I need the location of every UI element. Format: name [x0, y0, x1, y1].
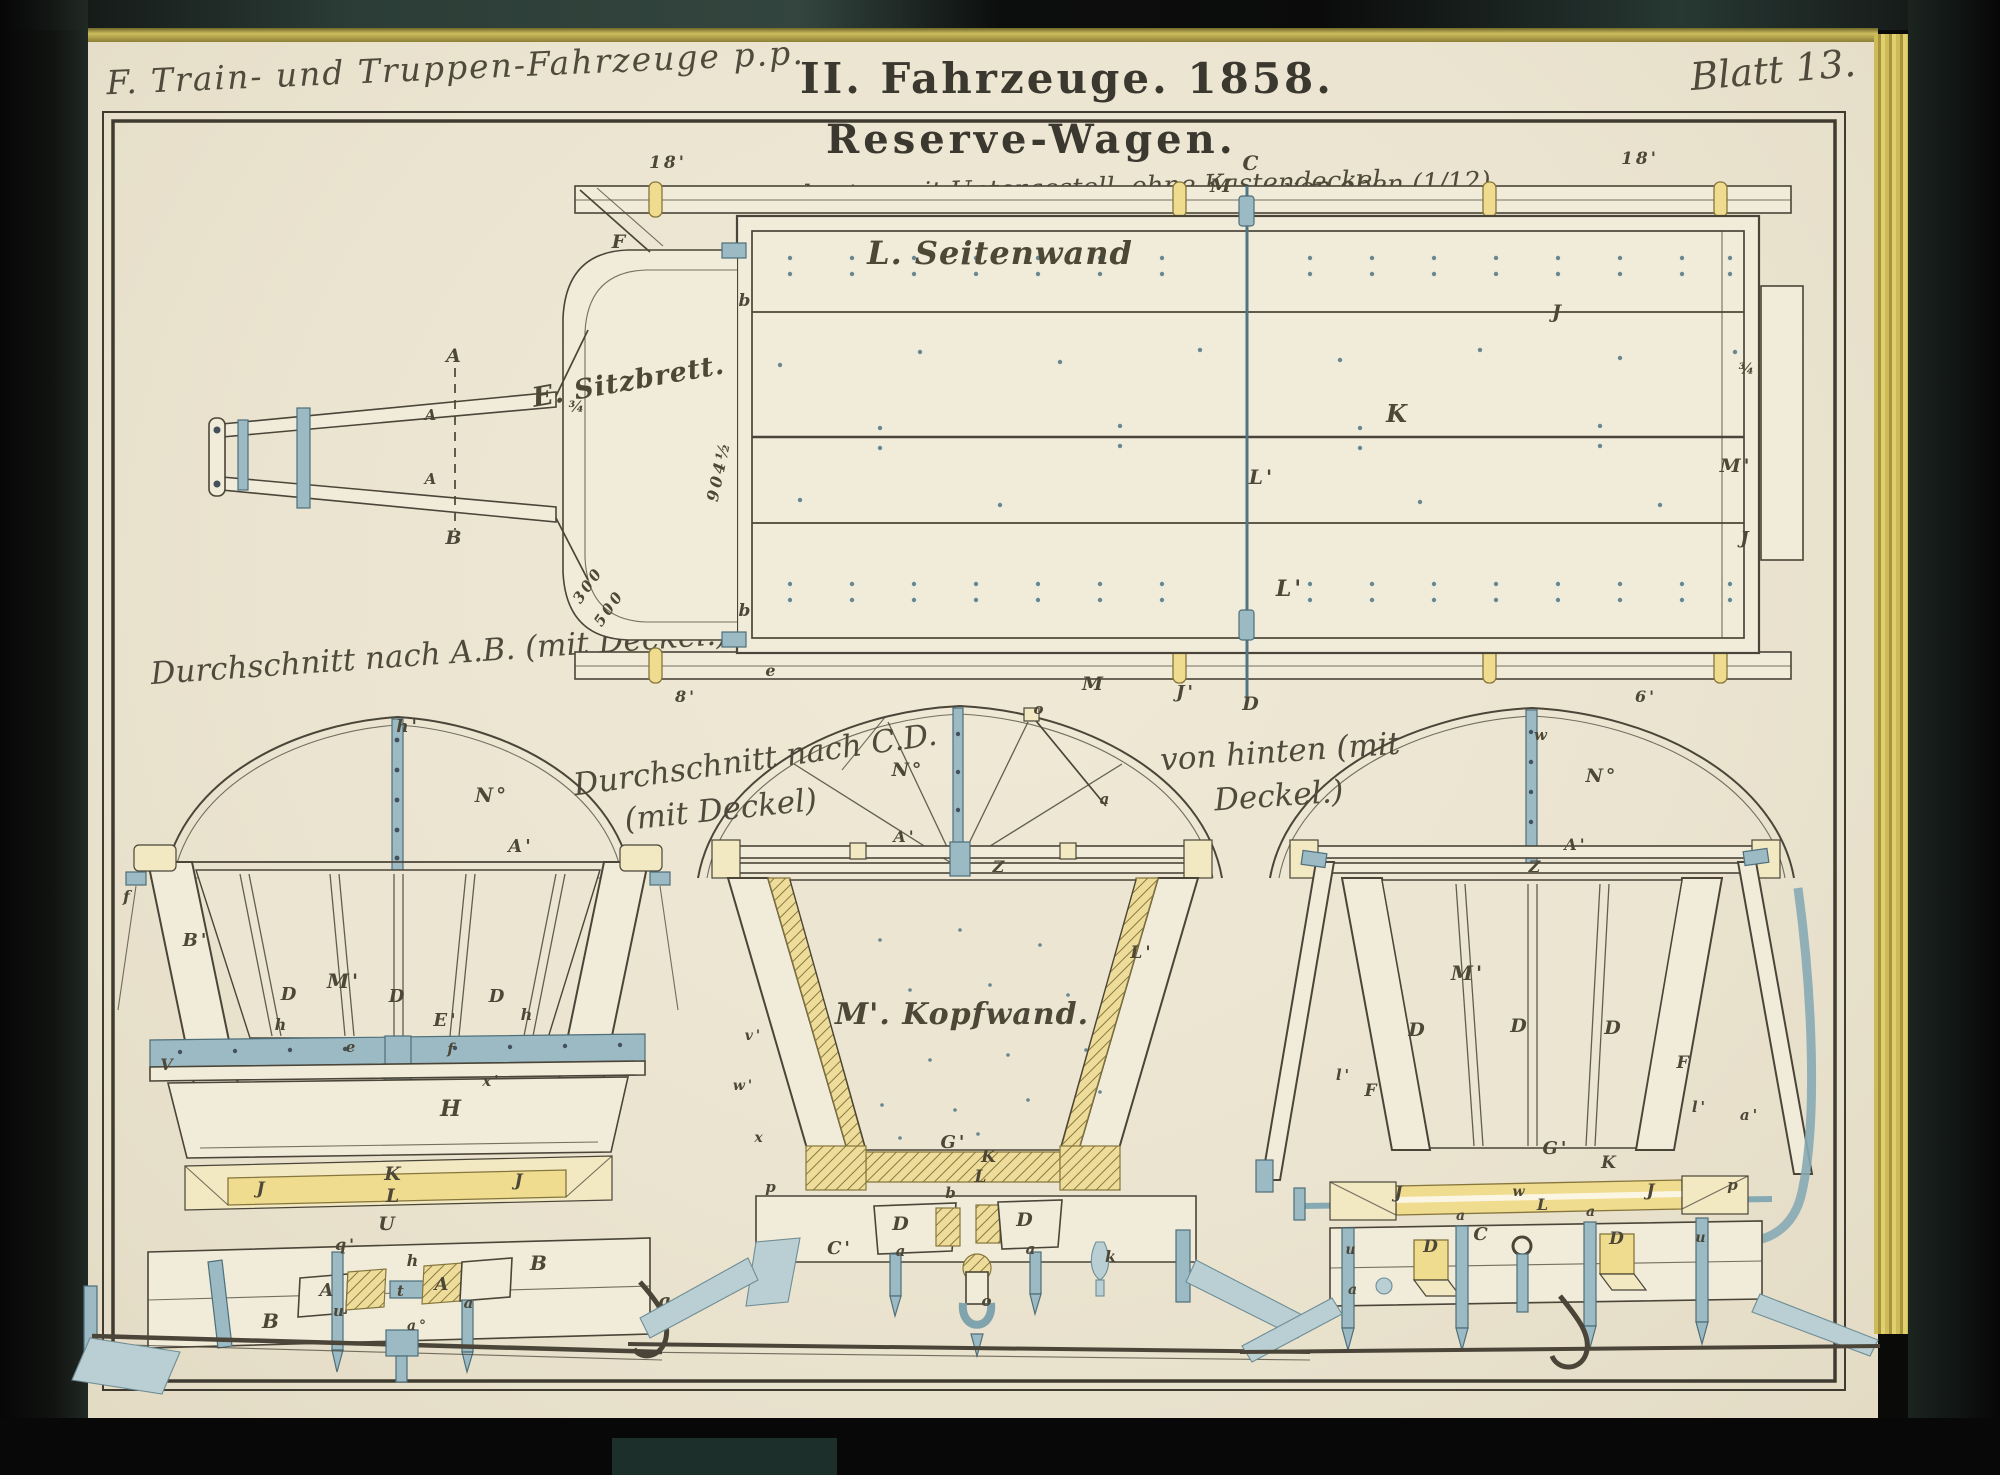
part-label: J [1391, 1183, 1405, 1203]
part-label: ¾ [569, 398, 588, 416]
nail-dot [878, 938, 882, 942]
part-label: L. Seitenwand [866, 234, 1133, 272]
nail-dot [788, 272, 792, 276]
part-label: D [1608, 1229, 1627, 1249]
part-label: M' [326, 969, 361, 993]
nail-dot [974, 272, 978, 276]
part-label: B [444, 527, 464, 549]
part-label: A [423, 470, 440, 488]
part-label: F [1363, 1081, 1379, 1101]
nail-dot [1308, 582, 1312, 586]
part-label: D [388, 986, 408, 1007]
nail-dot [998, 503, 1002, 507]
nail-dot [1036, 582, 1040, 586]
nail-dot [898, 1136, 902, 1140]
part-label: l' [1692, 1098, 1708, 1116]
nail-dot [1556, 582, 1560, 586]
nail-dot [976, 1132, 980, 1136]
part-label: C [1473, 1224, 1490, 1245]
plate-drawing: 18'18'CMFL. SeitenwandE. Sitzbrett.bb904… [0, 0, 2000, 1475]
nail-dot [1370, 598, 1374, 602]
part-label: U [378, 1213, 398, 1235]
part-label: A' [506, 836, 533, 857]
part-label: J [1737, 528, 1752, 549]
nail-dot [958, 928, 962, 932]
part-label: M [1209, 175, 1234, 197]
nail-dot [1618, 598, 1622, 602]
nail-dot [912, 272, 916, 276]
part-label: a [464, 1294, 477, 1312]
nail-dot [1618, 272, 1622, 276]
part-label: o [981, 1292, 994, 1310]
part-label: l' [1336, 1066, 1352, 1084]
part-label: Z [1528, 857, 1544, 876]
nail-dot [1160, 272, 1164, 276]
part-label: G' [941, 1132, 968, 1153]
nail-dot [918, 350, 922, 354]
nail-dot [1618, 256, 1622, 260]
part-label: L' [1129, 943, 1153, 963]
part-label: a [1026, 1240, 1039, 1258]
part-label: b [739, 601, 754, 621]
nail-dot [1308, 256, 1312, 260]
section-ab-drawing: h'N°A'fB'DM'DDE'hhefx'VHKLUJJq'hAABBtaua… [72, 717, 678, 1394]
part-label: L' [1248, 465, 1275, 489]
part-label: D [280, 984, 300, 1005]
nail-dot [850, 256, 854, 260]
nail-dot [1370, 582, 1374, 586]
nail-dot [1728, 598, 1732, 602]
nail-dot [1098, 598, 1102, 602]
nail-dot [788, 598, 792, 602]
part-label: B [529, 1251, 550, 1275]
section-cd-drawing: oN°aA'Zv'w'xL'M'. Kopfwand.G'KLbpDDC'aak… [628, 700, 1310, 1360]
nail-dot [974, 598, 978, 602]
nail-dot [1598, 444, 1602, 448]
part-label: C [1243, 151, 1262, 175]
part-label: 6' [1635, 687, 1657, 706]
nail-dot [1118, 444, 1122, 448]
part-label: v' [745, 1028, 763, 1044]
part-label: K [383, 1163, 404, 1185]
floor-bar [866, 1152, 1060, 1182]
nail-dot [1038, 943, 1042, 947]
nail-dot [878, 446, 882, 450]
drawbar [209, 330, 588, 580]
part-label: 8' [674, 687, 697, 706]
nail-dot [1098, 1090, 1102, 1094]
part-label: L [1536, 1195, 1551, 1214]
part-label: u [333, 1302, 347, 1320]
part-label: M' [1719, 455, 1753, 477]
nail-dot [850, 582, 854, 586]
nail-dot [1308, 272, 1312, 276]
part-label: p [765, 1178, 779, 1196]
part-label: J' [1173, 682, 1196, 703]
part-label: b [739, 291, 754, 311]
tail-board [1761, 286, 1803, 560]
nail-dot [1556, 598, 1560, 602]
nail-dot [974, 582, 978, 586]
part-label: h [407, 1251, 422, 1270]
nail-dot [1618, 356, 1622, 360]
nail-dot [1598, 424, 1602, 428]
nail-dot [1680, 256, 1684, 260]
part-label: L' [1275, 576, 1304, 602]
nail-dot [850, 272, 854, 276]
part-label: a' [1740, 1106, 1760, 1124]
part-label: w [1512, 1184, 1527, 1200]
part-label: e [346, 1038, 359, 1056]
nail-dot [1618, 582, 1622, 586]
part-label: q' [335, 1235, 357, 1254]
part-label: Z [992, 857, 1008, 876]
part-label: L [974, 1167, 990, 1187]
nail-dot [788, 582, 792, 586]
nail-dot [1160, 256, 1164, 260]
nail-dot [1370, 272, 1374, 276]
part-label: N° [1585, 765, 1619, 787]
part-label: J [511, 1171, 525, 1191]
part-label: p [1727, 1176, 1741, 1194]
part-label: D [1241, 693, 1261, 715]
part-label: F [1675, 1053, 1691, 1073]
nail-dot [1358, 426, 1362, 430]
nail-dot [1733, 350, 1737, 354]
part-label: h [275, 1015, 290, 1034]
part-label: k [1105, 1247, 1119, 1266]
part-label: C' [827, 1238, 853, 1259]
part-label: x' [481, 1072, 502, 1090]
drag-hook [1552, 1296, 1587, 1367]
part-label: M' [1450, 961, 1485, 985]
part-label: L [385, 1185, 402, 1207]
top-view-drawing: 18'18'CMFL. SeitenwandE. Sitzbrett.bb904… [209, 149, 1803, 715]
nail-dot [778, 363, 782, 367]
rear-view-drawing: wN°A'ZM'DDDFFl'l'a'G'KJJwLCaaDDuapu [1240, 708, 1880, 1367]
nail-dot [1680, 582, 1684, 586]
part-label: f [122, 887, 133, 906]
nail-dot [1680, 598, 1684, 602]
part-label: N° [891, 759, 925, 781]
nail-dot [988, 983, 992, 987]
nail-dot [953, 1108, 957, 1112]
part-label: A [444, 345, 464, 367]
nail-dot [1432, 598, 1436, 602]
part-label: D [488, 986, 508, 1007]
nail-dot [1036, 272, 1040, 276]
part-label: D [1407, 1019, 1427, 1041]
nail-dot [1036, 598, 1040, 602]
nail-dot [850, 598, 854, 602]
part-label: u [1345, 1242, 1358, 1258]
nail-dot [1358, 446, 1362, 450]
part-label: 18' [649, 153, 687, 173]
part-label: a [1456, 1208, 1468, 1224]
part-label: B [261, 1309, 282, 1333]
part-label: N° [474, 783, 509, 807]
part-label: K [1385, 399, 1410, 428]
nail-dot [912, 598, 916, 602]
nail-dot [1728, 272, 1732, 276]
part-label: ¾ [1739, 360, 1758, 378]
nail-dot [1118, 424, 1122, 428]
nail-dot [1478, 348, 1482, 352]
nail-dot [1058, 360, 1062, 364]
nail-dot [1432, 256, 1436, 260]
part-label: A [318, 1280, 337, 1301]
part-label: b [945, 1184, 959, 1202]
nail-dot [928, 1058, 932, 1062]
part-label: J [1549, 301, 1564, 323]
part-label: a [896, 1242, 909, 1260]
nail-dot [1308, 598, 1312, 602]
part-label: o [1033, 700, 1046, 718]
part-label: K [1600, 1153, 1619, 1173]
part-label: K [980, 1147, 999, 1167]
nail-dot [1160, 598, 1164, 602]
part-label: D [1015, 1209, 1035, 1231]
part-label: D [1422, 1237, 1441, 1257]
part-label: h [521, 1005, 536, 1024]
nail-dot [1658, 503, 1662, 507]
part-label: G' [1543, 1138, 1570, 1159]
part-label: a° [407, 1318, 429, 1334]
part-label: M'. Kopfwand. [834, 997, 1089, 1032]
nail-dot [798, 498, 802, 502]
part-label: J [1643, 1181, 1657, 1201]
nail-dot [1494, 582, 1498, 586]
part-label: J [253, 1179, 267, 1199]
part-label: A' [891, 827, 916, 846]
nail-dot [1370, 256, 1374, 260]
nail-dot [1432, 272, 1436, 276]
part-label: A [423, 406, 440, 424]
nail-dot [1006, 1053, 1010, 1057]
nail-dot [1026, 1098, 1030, 1102]
part-label: D [1509, 1015, 1529, 1037]
part-label: t [397, 1282, 407, 1300]
part-label: B' [182, 930, 210, 951]
part-label: V [160, 1055, 175, 1074]
nail-dot [1680, 272, 1684, 276]
nail-dot [1494, 272, 1498, 276]
part-label: a [1100, 790, 1113, 808]
nail-dot [1418, 500, 1422, 504]
nail-dot [1556, 272, 1560, 276]
nail-dot [1084, 1048, 1088, 1052]
nail-dot [1098, 582, 1102, 586]
part-label: E' [432, 1010, 458, 1031]
part-label: a [1348, 1282, 1360, 1298]
nail-dot [1728, 256, 1732, 260]
nail-dot [1198, 348, 1202, 352]
nail-dot [1098, 272, 1102, 276]
part-label: a [1586, 1204, 1598, 1220]
nail-dot [908, 988, 912, 992]
part-label: w [1534, 726, 1550, 744]
nail-dot [1338, 358, 1342, 362]
part-label: D [1603, 1017, 1623, 1039]
part-label: A' [1562, 835, 1587, 854]
part-label: h' [396, 717, 420, 737]
part-label: 18' [1621, 149, 1659, 169]
nail-dot [788, 256, 792, 260]
part-label: M [1081, 673, 1106, 695]
nail-dot [1728, 582, 1732, 586]
part-label: F [611, 231, 629, 253]
nail-dot [1494, 256, 1498, 260]
part-label: H [439, 1096, 464, 1122]
nail-dot [1556, 256, 1560, 260]
nail-dot [1160, 582, 1164, 586]
part-label: D [891, 1213, 911, 1235]
part-label: u [1695, 1230, 1708, 1246]
nail-dot [880, 1103, 884, 1107]
part-label: e [765, 661, 778, 680]
nail-dot [912, 582, 916, 586]
nail-dot [878, 426, 882, 430]
part-label: x [753, 1130, 765, 1146]
part-label: w' [733, 1078, 755, 1094]
nail-dot [1432, 582, 1436, 586]
part-label: f [446, 1040, 456, 1058]
part-label: A [433, 1274, 452, 1295]
nail-dot [1494, 598, 1498, 602]
